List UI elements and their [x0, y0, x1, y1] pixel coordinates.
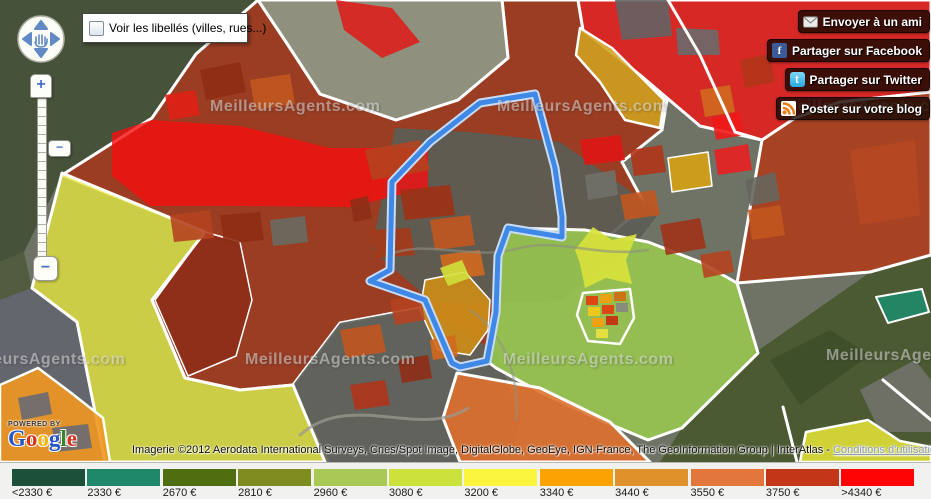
legend-swatch: [691, 469, 764, 486]
zoom-slider-thumb[interactable]: −: [48, 140, 71, 157]
legend-label: 3440 €: [615, 487, 688, 499]
post-to-blog-button[interactable]: Poster sur votre blog: [776, 97, 930, 120]
google-letter: G: [8, 426, 26, 451]
share-twitter-button[interactable]: t Partager sur Twitter: [785, 68, 930, 91]
legend-item: 3550 €: [691, 469, 764, 499]
parcel[interactable]: [614, 292, 626, 301]
legend-item: 3080 €: [389, 469, 462, 499]
google-letter: e: [67, 426, 77, 451]
legend-item: 2960 €: [314, 469, 387, 499]
parcel[interactable]: [616, 303, 628, 312]
legend-item: <2330 €: [12, 469, 85, 499]
legend-swatch: [389, 469, 462, 486]
legend-label: 3550 €: [691, 487, 764, 499]
legend-swatch: [314, 469, 387, 486]
legend-item: 2330 €: [87, 469, 160, 499]
google-letter: o: [37, 426, 49, 451]
zoom-slider-track[interactable]: [37, 98, 47, 258]
legend-swatch: [87, 469, 160, 486]
watermark: MeilleursAgents.com: [210, 98, 380, 116]
google-wordmark: Google: [8, 428, 77, 450]
watermark: MeilleursAgents.com: [826, 347, 931, 365]
legend-item: 2810 €: [238, 469, 311, 499]
rss-icon: [781, 101, 796, 116]
legend-label: <2330 €: [12, 487, 85, 499]
legend-label: >4340 €: [841, 487, 914, 499]
watermark: MeilleursAgents.com: [245, 351, 415, 369]
labels-checkbox[interactable]: [89, 21, 104, 36]
parcel[interactable]: [592, 318, 604, 327]
legend-swatch: [615, 469, 688, 486]
parcel[interactable]: [630, 145, 666, 176]
parcel[interactable]: [585, 170, 618, 200]
parcel[interactable]: [600, 294, 612, 303]
map-canvas[interactable]: + − − Voir les libellés (villes, rues...…: [0, 0, 931, 462]
legend-swatch: [464, 469, 537, 486]
legend-item: 3340 €: [540, 469, 613, 499]
google-logo[interactable]: POWERED BY Google: [8, 421, 77, 450]
terms-of-use-link[interactable]: Conditions d'utilisation: [833, 444, 931, 456]
parcel[interactable]: [350, 380, 390, 410]
legend-label: 2330 €: [87, 487, 160, 499]
legend-swatch: [841, 469, 914, 486]
price-legend: <2330 €2330 €2670 €2810 €2960 €3080 €320…: [0, 462, 931, 499]
price-map-app: + − − Voir les libellés (villes, rues...…: [0, 0, 931, 499]
region-brick-right-light: [850, 140, 920, 225]
parcel[interactable]: [270, 216, 308, 246]
share-button-label: Envoyer à un ami: [823, 15, 922, 29]
legend-item: 3200 €: [464, 469, 537, 499]
legend-label: 3080 €: [389, 487, 462, 499]
legend-label: 2960 €: [314, 487, 387, 499]
legend-item: 3750 €: [766, 469, 839, 499]
parcel[interactable]: [606, 316, 618, 325]
parcel-gold-east[interactable]: [668, 152, 712, 192]
parcel[interactable]: [350, 196, 372, 222]
labels-toggle-panel: Voir les libellés (villes, rues...): [82, 13, 248, 43]
satellite-gray-tr-1: [615, 0, 672, 40]
parcel[interactable]: [170, 210, 214, 242]
parcel[interactable]: [596, 329, 608, 338]
zoom-in-button[interactable]: +: [30, 74, 52, 98]
labels-checkbox-label[interactable]: Voir les libellés (villes, rues...): [109, 21, 266, 35]
pan-control[interactable]: [17, 15, 65, 63]
google-letter: o: [26, 426, 38, 451]
share-facebook-button[interactable]: f Partager sur Facebook: [767, 39, 930, 62]
share-button-label: Partager sur Facebook: [792, 44, 922, 58]
share-buttons: Envoyer à un ami f Partager sur Facebook…: [767, 10, 930, 126]
share-button-label: Partager sur Twitter: [810, 73, 922, 87]
parcel[interactable]: [602, 305, 614, 314]
watermark: MeilleursAgents.com: [503, 351, 673, 369]
zoom-out-button[interactable]: −: [33, 256, 58, 281]
legend-swatch: [540, 469, 613, 486]
parcel[interactable]: [620, 190, 660, 220]
share-button-label: Poster sur votre blog: [801, 102, 922, 116]
email-icon: [803, 14, 818, 29]
legend-swatch: [766, 469, 839, 486]
legend-label: 3750 €: [766, 487, 839, 499]
send-to-friend-button[interactable]: Envoyer à un ami: [798, 10, 930, 33]
parcel[interactable]: [586, 296, 598, 305]
legend-swatch: [238, 469, 311, 486]
parcel[interactable]: [700, 85, 735, 117]
legend-label: 3200 €: [464, 487, 537, 499]
watermark: MeilleursAgents.com: [0, 351, 125, 369]
watermark: MeilleursAgents.com: [497, 98, 667, 116]
legend-label: 3340 €: [540, 487, 613, 499]
legend-item: 3440 €: [615, 469, 688, 499]
legend-item: 2670 €: [163, 469, 236, 499]
parcel[interactable]: [165, 90, 200, 120]
parcel[interactable]: [748, 205, 785, 240]
parcel[interactable]: [580, 135, 625, 165]
parcel[interactable]: [220, 212, 264, 244]
map-attribution: Imagerie ©2012 Aerodata International Su…: [132, 444, 931, 456]
parcel[interactable]: [430, 215, 475, 250]
legend-label: 2810 €: [238, 487, 311, 499]
google-letter: g: [49, 426, 61, 451]
twitter-icon: t: [790, 72, 805, 87]
facebook-icon: f: [772, 43, 787, 58]
attribution-text: Imagerie ©2012 Aerodata International Su…: [132, 444, 833, 456]
legend-item: >4340 €: [841, 469, 914, 499]
legend-label: 2670 €: [163, 487, 236, 499]
parcel[interactable]: [400, 185, 455, 220]
legend-swatch: [163, 469, 236, 486]
parcel[interactable]: [588, 307, 600, 316]
legend-swatch: [12, 469, 85, 486]
